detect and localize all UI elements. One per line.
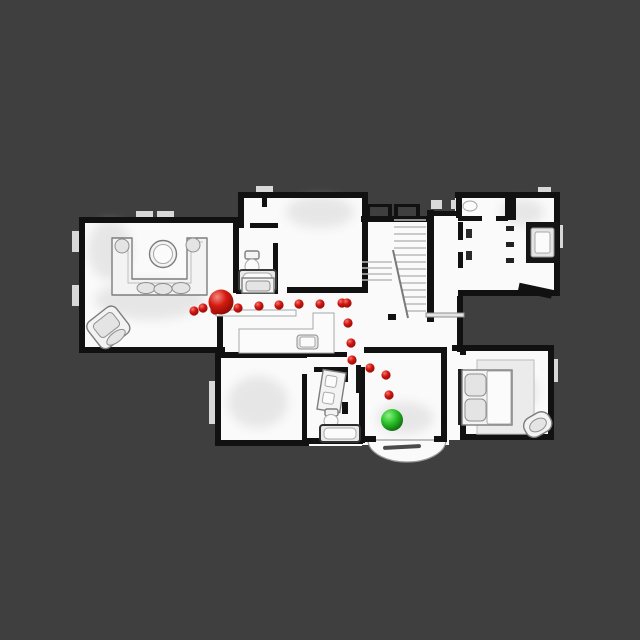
bathtub-lower [320,425,360,442]
waypoint-dot [294,299,303,308]
hall-sink [463,201,477,211]
waypoint-dot [198,303,207,312]
window-nub [157,211,174,218]
window-nub [256,186,273,193]
floorplan-canvas [0,0,640,640]
fireplace [526,222,559,263]
waypoint-dot [381,370,390,379]
hall-ledge [426,313,464,317]
window-nub [431,200,442,209]
waypoint-dot [384,390,393,399]
waypoint-dot [365,363,374,372]
waypoint-dot [315,299,324,308]
stove [242,278,274,293]
waypoint-dot [342,298,351,307]
waypoint-dot [189,306,198,315]
start-marker [209,290,234,315]
goal-marker [381,409,403,431]
side-table-right [186,238,200,252]
side-table-left [115,239,129,253]
door-hardware [466,251,472,260]
kitchen-sink [297,335,318,349]
waypoint-dot [254,301,263,310]
bed [458,369,512,425]
waypoint-dot [347,355,356,364]
shelf-mark [506,242,514,247]
waypoint-dot [274,300,283,309]
window-nub [136,211,153,218]
waypoint-dot [233,303,242,312]
waypoint-dot [343,318,352,327]
shelf-mark [506,258,514,263]
door-leaf [356,365,361,393]
waypoint-dot [346,338,355,347]
bay-porch [368,440,446,462]
stair-newel [388,314,396,320]
shelf-mark [506,226,514,231]
coffee-table [150,241,177,268]
door-hardware [466,229,472,238]
